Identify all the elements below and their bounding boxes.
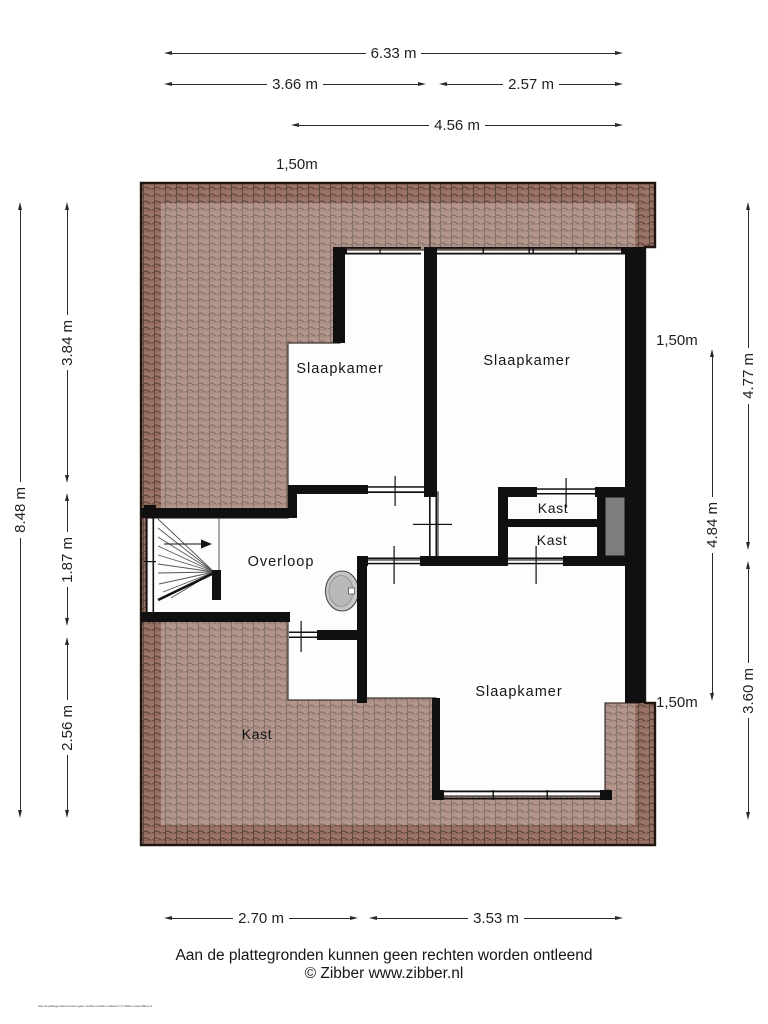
room-label-kast-upper: Kast xyxy=(538,500,568,516)
dimension-label: 1.87 m xyxy=(60,532,75,588)
dimension-bottom-left: 2.70 m xyxy=(162,913,360,923)
dimension-top-right: 2.57 m xyxy=(437,79,625,89)
dimension-label: 3.66 m xyxy=(267,77,323,92)
room-label-kast-attic: Kast xyxy=(242,726,272,742)
floorplan-page: Slaapkamer Slaapkamer Overloop Kast Kast… xyxy=(0,0,768,1024)
copyright-text: © Zibber www.zibber.nl xyxy=(0,965,768,983)
height-line-label-top: 1,50m xyxy=(276,157,318,172)
dimension-top-total: 6.33 m xyxy=(162,48,625,58)
sink-icon xyxy=(326,571,359,611)
shaft-duct xyxy=(605,497,625,556)
dimension-top-inner: 4.56 m xyxy=(289,120,625,130)
height-line-label-right-upper: 1,50m xyxy=(656,333,698,348)
dimension-right-lower: 3.60 m xyxy=(743,559,753,822)
room-label-slaapkamer-top-left: Slaapkamer xyxy=(296,361,383,377)
dimension-left-middle: 1.87 m xyxy=(62,491,72,628)
dimension-bottom-right: 3.53 m xyxy=(367,913,625,923)
dimension-left-upper: 3.84 m xyxy=(62,200,72,485)
dimension-label: 4.56 m xyxy=(429,118,485,133)
dimension-top-left: 3.66 m xyxy=(162,79,428,89)
dimension-right-inner: 4.84 m xyxy=(707,347,717,703)
dimension-left-total: 8.48 m xyxy=(15,200,25,820)
dimension-label: 3.60 m xyxy=(741,663,756,719)
height-line-label-right-lower: 1,50m xyxy=(656,695,698,710)
room-label-kast-lower: Kast xyxy=(537,532,567,548)
dimension-label: 3.84 m xyxy=(60,315,75,371)
dimension-label: 8.48 m xyxy=(13,482,28,538)
dimension-label: 2.56 m xyxy=(60,700,75,756)
dimension-label: 2.57 m xyxy=(503,77,559,92)
dimension-label: 3.53 m xyxy=(468,911,524,926)
room-label-slaapkamer-top-right: Slaapkamer xyxy=(483,353,570,369)
micro-disclaimer-text: Aan de plattegronden kunnen geen rechten… xyxy=(38,1005,152,1008)
room-label-slaapkamer-bottom: Slaapkamer xyxy=(475,684,562,700)
dimension-label: 4.84 m xyxy=(705,497,720,553)
dimension-left-lower: 2.56 m xyxy=(62,635,72,820)
dimension-right-upper: 4.77 m xyxy=(743,200,753,552)
disclaimer-text: Aan de plattegronden kunnen geen rechten… xyxy=(0,947,768,965)
dimension-label: 6.33 m xyxy=(366,46,422,61)
dimension-label: 4.77 m xyxy=(741,348,756,404)
floor-plan: Slaapkamer Slaapkamer Overloop Kast Kast… xyxy=(0,0,768,1024)
room-label-overloop: Overloop xyxy=(248,554,315,570)
dimension-label: 2.70 m xyxy=(233,911,289,926)
